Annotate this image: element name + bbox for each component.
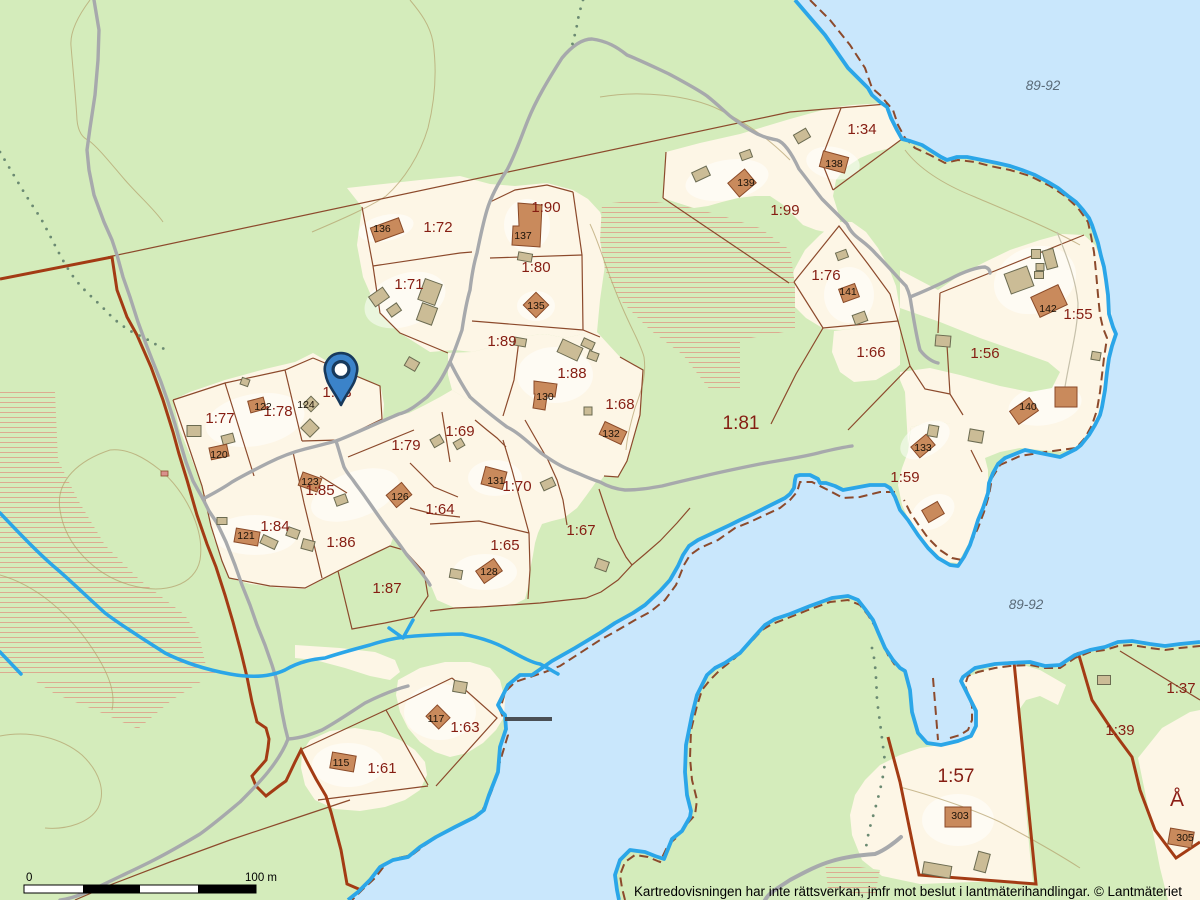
svg-text:1:76: 1:76 <box>811 267 840 284</box>
svg-text:1:55: 1:55 <box>1063 306 1092 323</box>
svg-text:123: 123 <box>301 476 319 488</box>
svg-text:1:80: 1:80 <box>521 259 550 276</box>
svg-text:1:79: 1:79 <box>391 437 420 454</box>
svg-text:1:87: 1:87 <box>372 580 401 597</box>
svg-text:130: 130 <box>536 391 554 403</box>
svg-text:Kartredovisningen har inte rät: Kartredovisningen har inte rättsverkan, … <box>634 884 1182 899</box>
svg-text:1:69: 1:69 <box>445 423 474 440</box>
svg-text:1:81: 1:81 <box>723 413 760 434</box>
svg-text:1:39: 1:39 <box>1105 722 1134 739</box>
svg-text:1:59: 1:59 <box>890 469 919 486</box>
svg-text:124: 124 <box>297 399 315 411</box>
svg-text:121: 121 <box>237 530 255 542</box>
svg-text:1:72: 1:72 <box>423 219 452 236</box>
svg-text:135: 135 <box>527 300 545 312</box>
svg-text:122: 122 <box>254 401 272 413</box>
svg-text:1:70: 1:70 <box>502 478 531 495</box>
svg-text:1:84: 1:84 <box>260 518 289 535</box>
svg-text:1:71: 1:71 <box>394 276 423 293</box>
svg-text:1:34: 1:34 <box>847 121 876 138</box>
svg-text:139: 139 <box>737 177 755 189</box>
svg-text:115: 115 <box>333 757 350 769</box>
svg-text:1:99: 1:99 <box>770 202 799 219</box>
svg-text:1:89: 1:89 <box>487 333 516 350</box>
svg-text:1:88: 1:88 <box>557 365 586 382</box>
svg-text:Å: Å <box>1170 788 1184 811</box>
svg-text:131: 131 <box>487 475 505 487</box>
svg-text:141: 141 <box>839 286 857 298</box>
svg-text:117: 117 <box>428 713 445 725</box>
svg-text:1:68: 1:68 <box>605 396 634 413</box>
svg-text:1:65: 1:65 <box>490 537 519 554</box>
svg-text:140: 140 <box>1019 401 1037 413</box>
svg-text:137: 137 <box>514 230 532 242</box>
svg-text:136: 136 <box>373 223 391 235</box>
svg-text:1:77: 1:77 <box>205 410 234 427</box>
svg-text:1:57: 1:57 <box>938 766 975 787</box>
svg-text:1:66: 1:66 <box>856 344 885 361</box>
svg-text:132: 132 <box>602 428 620 440</box>
svg-text:89-92: 89-92 <box>1026 78 1061 93</box>
svg-text:1:86: 1:86 <box>326 534 355 551</box>
svg-text:1:61: 1:61 <box>367 760 396 777</box>
svg-text:1:90: 1:90 <box>531 199 560 216</box>
svg-text:1:37: 1:37 <box>1166 680 1195 697</box>
svg-text:89-92: 89-92 <box>1009 597 1044 612</box>
svg-text:1:63: 1:63 <box>450 719 479 736</box>
svg-text:1:67: 1:67 <box>566 522 595 539</box>
svg-text:128: 128 <box>480 566 498 578</box>
svg-text:100 m: 100 m <box>245 872 277 884</box>
svg-text:120: 120 <box>210 449 228 461</box>
svg-text:1:56: 1:56 <box>970 345 999 362</box>
svg-text:1:64: 1:64 <box>425 501 454 518</box>
svg-text:305: 305 <box>1176 832 1194 844</box>
svg-text:138: 138 <box>825 158 843 170</box>
svg-text:142: 142 <box>1039 303 1057 315</box>
svg-text:133: 133 <box>914 442 932 454</box>
svg-text:0: 0 <box>26 872 32 884</box>
svg-text:303: 303 <box>951 810 969 822</box>
svg-text:126: 126 <box>391 491 409 503</box>
